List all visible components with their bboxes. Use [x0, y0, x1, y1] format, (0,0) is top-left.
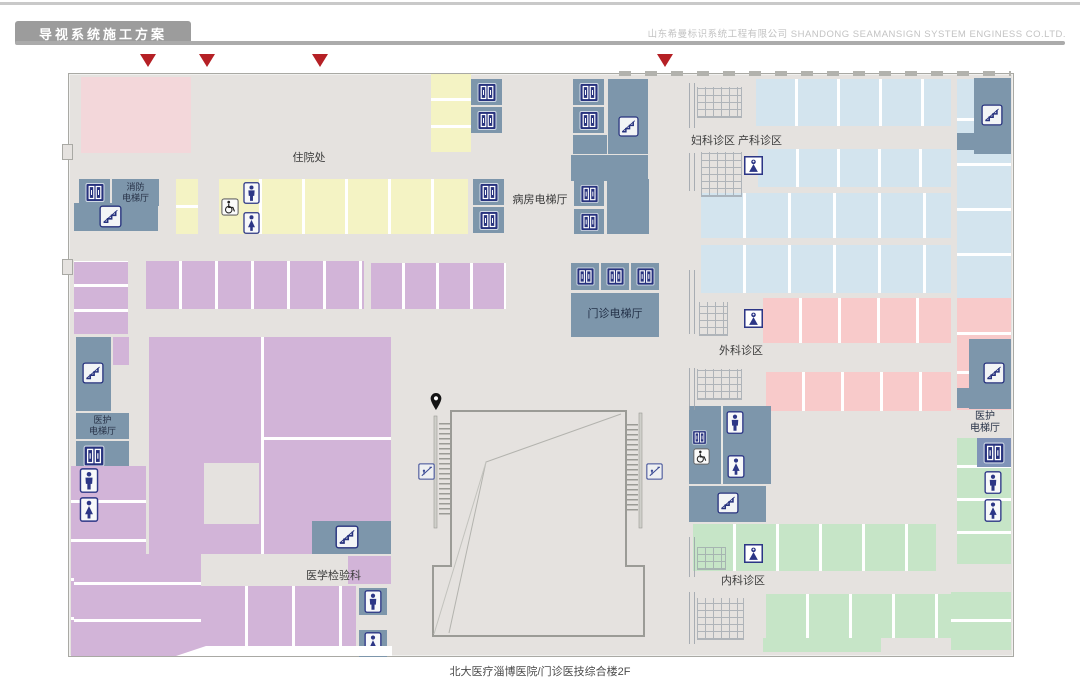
- location-marker-icon: [312, 54, 328, 67]
- stairs-icon: [335, 525, 359, 549]
- elevator-icon: [636, 266, 655, 287]
- elevator-cell: [79, 179, 110, 206]
- atrium-void: [411, 389, 671, 644]
- triage-station-icon: [744, 544, 763, 563]
- zone-gyn-cells: [701, 193, 951, 238]
- elevator-icon: [479, 182, 499, 203]
- wheelchair-icon: [221, 198, 239, 216]
- plan-caption: 北大医疗淄博医院/门诊医技综合楼2F: [0, 663, 1080, 679]
- elevator-icon: [85, 182, 105, 203]
- queue-rail: [689, 83, 695, 128]
- female-toilet-icon: [243, 212, 260, 234]
- floor-plan: 住院处 消防 电梯厅 病房电梯厅 门诊电梯厅 医护 电梯厅 医: [68, 73, 1014, 657]
- elevator-cell: [601, 263, 629, 290]
- elevator-icon: [479, 210, 499, 231]
- hall-block: [573, 135, 607, 154]
- stairs-icon: [983, 362, 1005, 384]
- medical-lab-label: 医学检验科: [276, 570, 391, 584]
- escalator-icon: [646, 463, 663, 480]
- zone-lab-cells: [371, 263, 506, 309]
- elevator-cell: [571, 263, 599, 290]
- plan-edge-tab: [62, 144, 73, 160]
- stair-hall-block: [957, 133, 974, 150]
- elevator-cell: [631, 263, 659, 290]
- elevator-icon: [579, 110, 599, 131]
- elevator-cell: [471, 79, 502, 105]
- zone-inpatient-cells: [431, 74, 471, 152]
- zone-surgery-cells: [766, 372, 951, 411]
- stairs-icon: [981, 104, 1003, 126]
- staff-elevator-hall-left-label: 医护 电梯厅: [76, 413, 129, 439]
- wheelchair-icon: [693, 448, 710, 465]
- elevator-icon: [580, 212, 599, 232]
- escalator-icon: [418, 463, 435, 480]
- male-toilet-icon: [243, 182, 260, 204]
- elevator-cell: [573, 79, 604, 105]
- queue-rail: [689, 368, 695, 410]
- stairs-icon: [99, 205, 122, 228]
- zone-lab-cells: [146, 261, 364, 309]
- waiting-chairs: [701, 152, 742, 197]
- zone-internal-cells: [766, 594, 951, 638]
- escalator-rail: [639, 413, 642, 528]
- elevator-icon: [983, 441, 1005, 465]
- zone-right-green-cells: [951, 592, 1011, 650]
- zone-purple-cells: [113, 337, 129, 365]
- elevator-icon: [606, 266, 625, 287]
- queue-rail: [689, 592, 695, 644]
- waiting-chairs: [697, 87, 742, 118]
- fire-elevator-hall-label: 消防 电梯厅: [112, 179, 159, 206]
- stairs-icon: [717, 492, 739, 514]
- header-rule: [15, 41, 1065, 45]
- internal-medicine-label: 内科诊区: [703, 575, 783, 589]
- you-are-here-pin-icon: [429, 392, 443, 411]
- elevator-icon: [580, 184, 599, 204]
- gyn-obstetrics-label: 妇科诊区 产科诊区: [691, 132, 821, 148]
- male-toilet-icon: [984, 471, 1002, 494]
- triage-station-icon: [744, 156, 763, 175]
- top-divider: [0, 2, 1080, 5]
- elevator-cell: [574, 209, 604, 234]
- queue-rail: [689, 153, 695, 191]
- queue-rail: [689, 270, 695, 334]
- elevator-cell: [473, 179, 504, 205]
- male-toilet-icon: [726, 411, 744, 434]
- male-toilet-icon: [79, 468, 99, 493]
- female-toilet-icon: [79, 497, 99, 522]
- waiting-chairs: [697, 547, 726, 570]
- zone-internal-cells: [763, 638, 881, 652]
- zone-internal-cells: [693, 524, 936, 571]
- elevator-cell: [573, 107, 604, 133]
- plan-bottom-notch: [206, 646, 392, 656]
- zone-gyn-cells: [758, 149, 951, 187]
- zone-surgery-cells: [763, 298, 951, 343]
- staff-elevator-hall-right-label: 医护 电梯厅: [959, 410, 1011, 436]
- location-marker-icon: [140, 54, 156, 67]
- plan-top-crenellation: [619, 71, 1011, 76]
- plan-edge-tab: [62, 259, 73, 275]
- location-marker-icon: [199, 54, 215, 67]
- elevator-cell: [471, 107, 502, 133]
- triage-station-icon: [744, 309, 763, 328]
- outpatient-elevator-hall-label: 门诊电梯厅: [571, 293, 659, 337]
- hall-block: [571, 155, 648, 181]
- zone-gyn-cells: [701, 245, 951, 293]
- elevator-icon: [579, 82, 599, 103]
- waiting-chairs: [697, 598, 744, 640]
- elevator-icon: [477, 82, 497, 103]
- toilet-cell: [359, 588, 387, 615]
- inpatient-label: 住院处: [264, 152, 354, 166]
- elevator-cell: [977, 438, 1011, 467]
- zone-purple-cells: [74, 261, 128, 334]
- elevator-cell: [574, 181, 604, 206]
- document-title: 导视系统施工方案: [39, 24, 167, 43]
- female-toilet-icon: [984, 499, 1002, 522]
- company-name: 山东希曼标识系统工程有限公司 SHANDONG SEAMANSIGN SYSTE…: [648, 26, 1066, 40]
- stair-hall-block: [957, 388, 969, 408]
- zone-pink-block: [81, 77, 191, 153]
- female-toilet-icon: [727, 455, 745, 478]
- zone-gyn-cells: [756, 79, 951, 126]
- ward-elevator-hall-label: 病房电梯厅: [506, 194, 574, 208]
- elevator-icon: [576, 266, 595, 287]
- elevator-icon: [477, 110, 497, 131]
- queue-rail: [689, 537, 695, 577]
- surgery-clinic-label: 外科诊区: [701, 345, 781, 359]
- stairs-icon: [618, 116, 639, 137]
- service-elevator-icon: [692, 430, 707, 445]
- elevator-cell: [473, 207, 504, 233]
- waiting-chairs: [697, 369, 742, 400]
- zone-lab-cells: [74, 554, 201, 656]
- waiting-chairs: [699, 302, 728, 336]
- male-toilet-icon: [364, 590, 382, 613]
- location-marker-icon: [657, 54, 673, 67]
- zone-inpatient-cells: [176, 179, 198, 234]
- hall-block: [607, 179, 649, 234]
- stairs-icon: [82, 362, 104, 384]
